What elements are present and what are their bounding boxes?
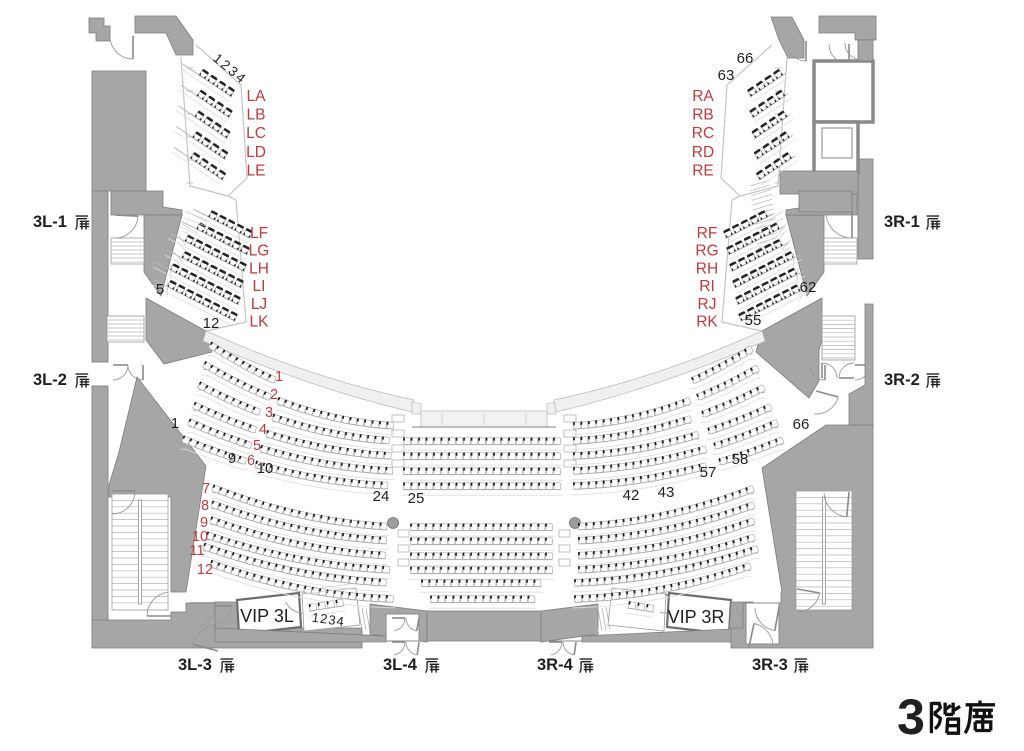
svg-text:7: 7	[202, 481, 210, 497]
svg-text:1: 1	[171, 415, 179, 432]
svg-text:RA: RA	[692, 88, 714, 105]
svg-text:RD: RD	[692, 144, 714, 161]
svg-text:LD: LD	[246, 144, 266, 161]
svg-text:3R-1: 3R-1	[884, 213, 920, 231]
svg-text:VIP 3L: VIP 3L	[240, 606, 294, 626]
svg-text:LA: LA	[247, 88, 267, 105]
svg-text:2: 2	[270, 387, 278, 403]
svg-text:RK: RK	[696, 314, 718, 331]
svg-text:3: 3	[265, 405, 273, 421]
svg-text:10: 10	[257, 460, 274, 477]
svg-text:LE: LE	[247, 162, 266, 179]
svg-text:1: 1	[275, 369, 283, 385]
svg-text:8: 8	[201, 498, 209, 514]
svg-text:3: 3	[897, 689, 925, 745]
svg-text:RE: RE	[692, 162, 714, 179]
svg-text:58: 58	[732, 451, 749, 468]
svg-text:11: 11	[189, 543, 204, 559]
svg-text:3R-4: 3R-4	[537, 656, 574, 674]
svg-text:LJ: LJ	[251, 296, 267, 313]
svg-text:3L-1: 3L-1	[33, 213, 67, 231]
svg-text:VIP 3R: VIP 3R	[668, 607, 725, 627]
svg-text:3L-4: 3L-4	[383, 656, 418, 674]
svg-text:RH: RH	[696, 260, 718, 277]
svg-text:12: 12	[197, 562, 213, 578]
svg-text:LI: LI	[253, 278, 266, 295]
svg-text:24: 24	[373, 488, 390, 505]
svg-text:RI: RI	[699, 278, 715, 295]
svg-text:RG: RG	[695, 243, 718, 260]
svg-text:LC: LC	[246, 125, 266, 142]
svg-text:57: 57	[700, 464, 717, 481]
svg-text:66: 66	[737, 50, 754, 67]
svg-text:5: 5	[253, 438, 261, 454]
svg-text:42: 42	[623, 487, 640, 504]
svg-text:66: 66	[793, 416, 810, 433]
svg-text:3R-3: 3R-3	[752, 656, 788, 674]
svg-text:9: 9	[228, 450, 236, 467]
svg-text:5: 5	[156, 281, 164, 298]
svg-text:RB: RB	[692, 107, 714, 124]
svg-text:LG: LG	[249, 243, 270, 260]
svg-text:3R-2: 3R-2	[884, 371, 920, 389]
svg-text:6: 6	[247, 453, 255, 469]
svg-text:55: 55	[745, 312, 762, 329]
svg-text:25: 25	[408, 490, 425, 507]
svg-text:RC: RC	[692, 125, 714, 142]
svg-text:63: 63	[718, 67, 735, 84]
svg-text:LB: LB	[247, 107, 266, 124]
svg-text:12: 12	[203, 315, 220, 332]
svg-text:LH: LH	[249, 260, 269, 277]
svg-text:62: 62	[800, 279, 817, 296]
svg-text:RF: RF	[697, 225, 718, 242]
svg-text:4: 4	[259, 422, 267, 438]
svg-text:3L-3: 3L-3	[178, 656, 212, 674]
svg-text:43: 43	[658, 484, 675, 501]
svg-text:3L-2: 3L-2	[33, 371, 67, 389]
svg-text:LF: LF	[250, 225, 268, 242]
svg-text:LK: LK	[250, 314, 270, 331]
svg-text:RJ: RJ	[698, 296, 717, 313]
